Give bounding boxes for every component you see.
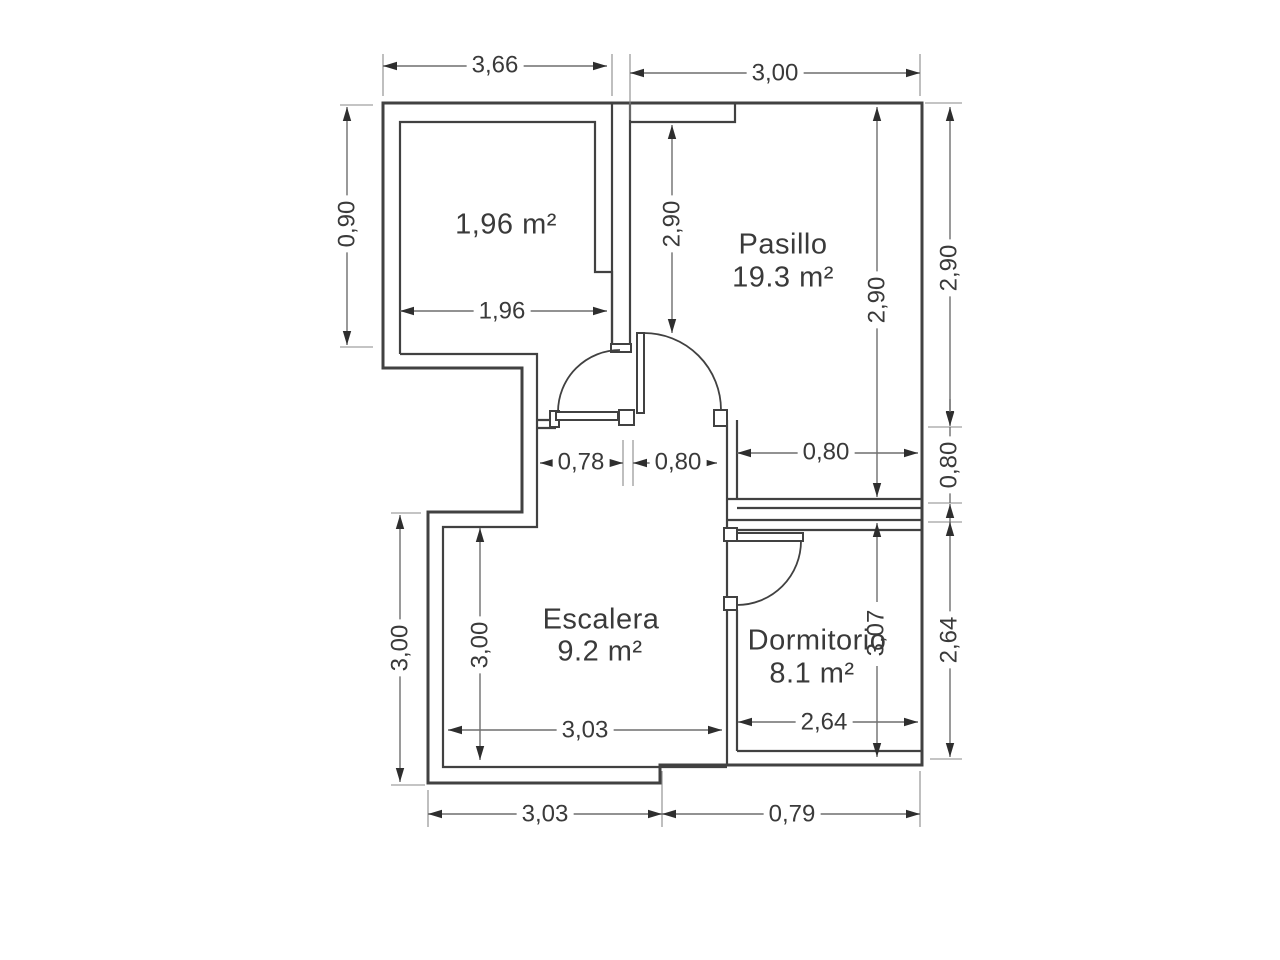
- door-swing-arc: [644, 333, 721, 410]
- dim-label-dormitorio-height: 3,07: [863, 605, 888, 662]
- room-label-storage-area: 1,96 m²: [455, 209, 557, 242]
- dim-label-bottom-width-left: 3,03: [517, 801, 574, 826]
- dim-label-escalera-height: 3,00: [467, 617, 492, 674]
- dim-label-pasillo-height-right: 2,90: [864, 272, 889, 329]
- dim-label-dormitorio-width: 2,64: [796, 709, 853, 734]
- door-frame: [619, 410, 634, 425]
- dim-label-pasillo-height-left: 2,90: [659, 196, 684, 253]
- dim-label-left-height-top: 0,90: [334, 196, 359, 253]
- door-leaf: [556, 412, 618, 420]
- floorplan-drawing: [0, 0, 1280, 960]
- dim-label-left-height-bottom: 3,00: [387, 620, 412, 677]
- dim-label-passage-right: 0,80: [798, 439, 855, 464]
- door-hall-right: [637, 333, 727, 426]
- dim-label-door-left: 0,78: [553, 449, 610, 474]
- door-frame: [724, 528, 737, 541]
- floorplan-canvas: 1,96 m² Pasillo 19.3 m² Escalera 9.2 m² …: [0, 0, 1280, 960]
- room-label-pasillo-area: 19.3 m²: [732, 262, 834, 295]
- dim-label-bottom-width-right: 0,79: [764, 801, 821, 826]
- door-leaf: [637, 333, 644, 413]
- dim-label-right-height-bottom: 2,64: [936, 612, 961, 669]
- dim-label-storage-width: 1,96: [474, 298, 531, 323]
- room-label-dormitorio-area: 8.1 m²: [769, 658, 854, 691]
- room-label-escalera-area: 9.2 m²: [557, 636, 642, 669]
- dimension-lines: [347, 66, 950, 814]
- door-frame: [714, 410, 727, 426]
- door-dormitorio: [724, 528, 803, 610]
- dim-label-escalera-width: 3,03: [557, 717, 614, 742]
- dim-label-top-width-right: 3,00: [747, 60, 804, 85]
- dim-label-door-mid: 0,80: [650, 449, 707, 474]
- door-hall-left: [550, 344, 634, 427]
- door-swing-arc: [558, 350, 620, 412]
- door-frame: [724, 597, 737, 610]
- dim-label-top-width-left: 3,66: [467, 52, 524, 77]
- extension-lines: [340, 54, 962, 827]
- door-leaf: [737, 533, 803, 541]
- dim-label-right-opening: 0,80: [936, 437, 961, 494]
- dim-label-right-height-top: 2,90: [936, 240, 961, 297]
- door-swing-arc: [737, 541, 801, 605]
- room-label-pasillo: Pasillo: [739, 229, 828, 262]
- room-label-escalera: Escalera: [543, 604, 660, 637]
